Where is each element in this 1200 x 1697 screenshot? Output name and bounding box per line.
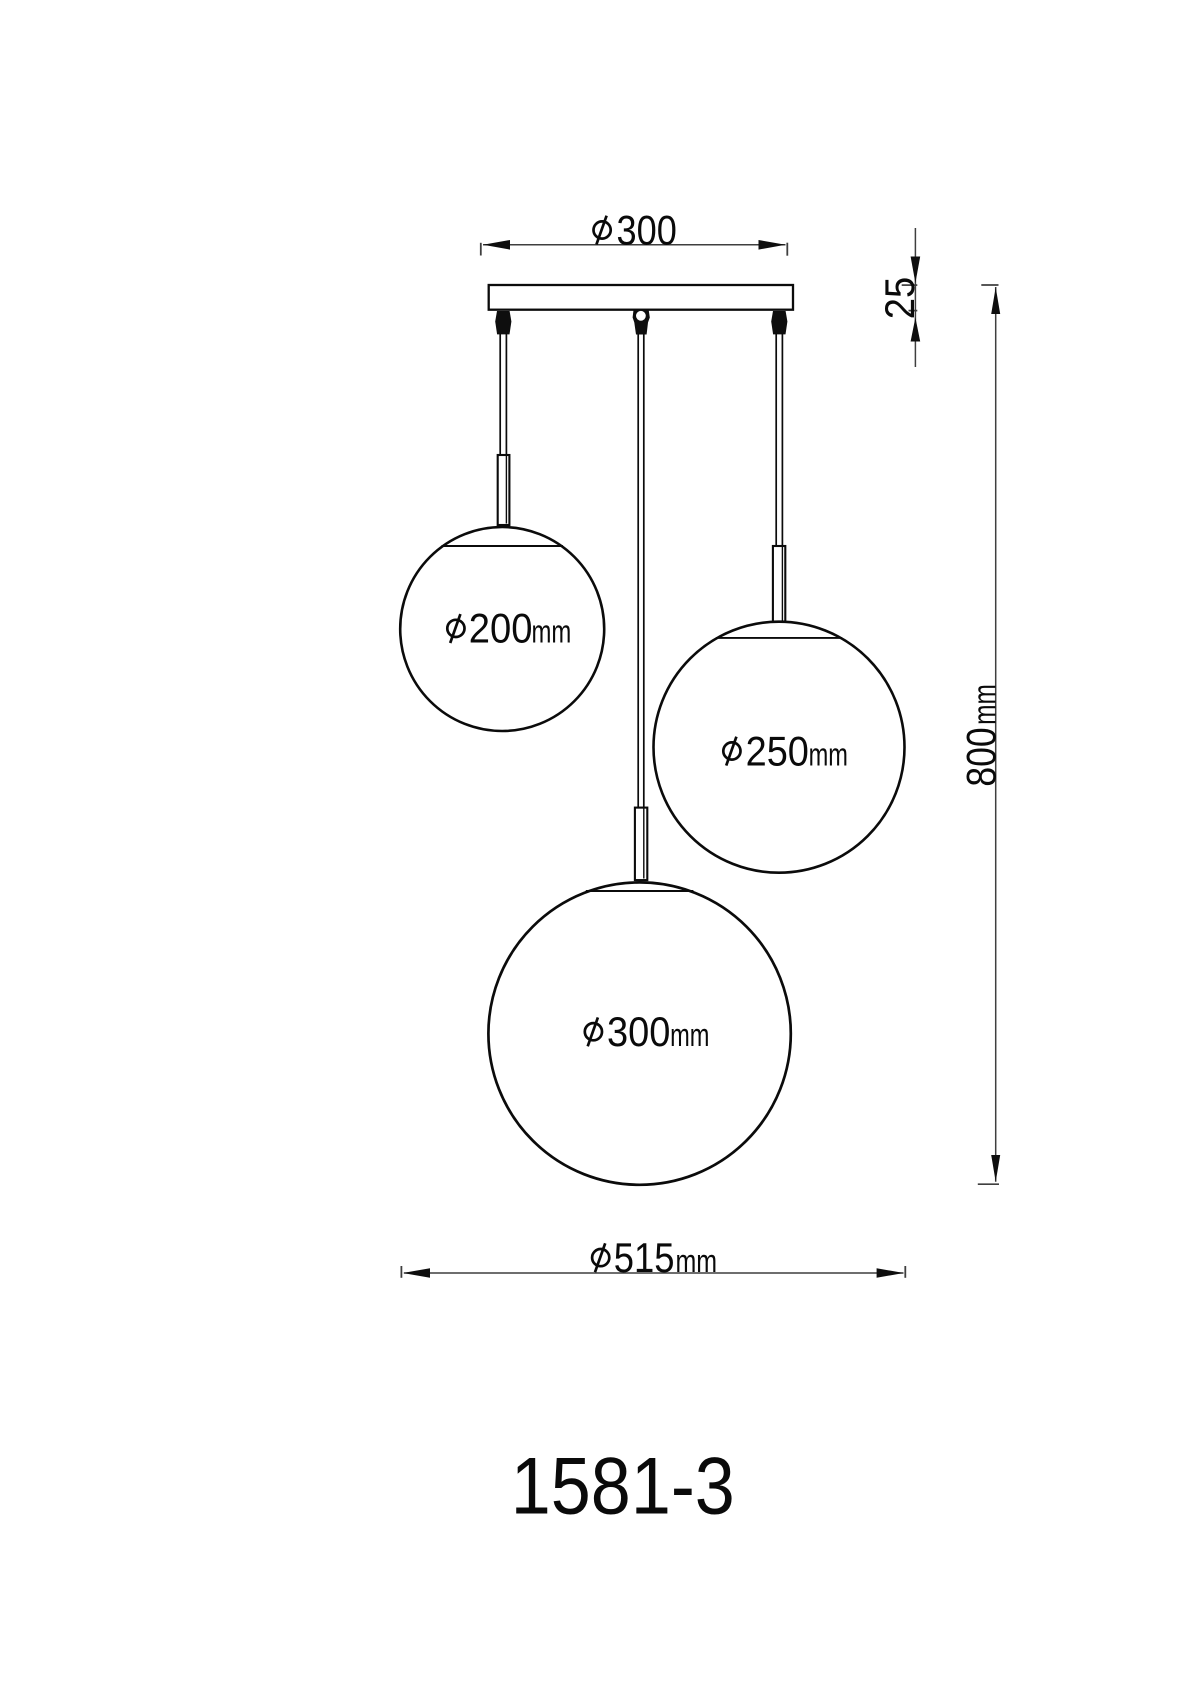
svg-text:800: 800 [957,727,1004,786]
svg-text:300: 300 [607,1008,670,1055]
svg-text:mm: mm [676,1243,718,1279]
svg-text:300: 300 [617,206,677,253]
svg-text:25: 25 [876,277,923,320]
svg-text:250: 250 [746,727,809,774]
svg-text:mm: mm [809,736,848,772]
svg-text:200: 200 [469,605,533,652]
svg-text:mm: mm [966,684,1002,725]
svg-text:mm: mm [532,614,572,650]
svg-text:mm: mm [670,1017,709,1053]
svg-text:1581-3: 1581-3 [511,1441,735,1531]
svg-text:515: 515 [614,1234,675,1281]
